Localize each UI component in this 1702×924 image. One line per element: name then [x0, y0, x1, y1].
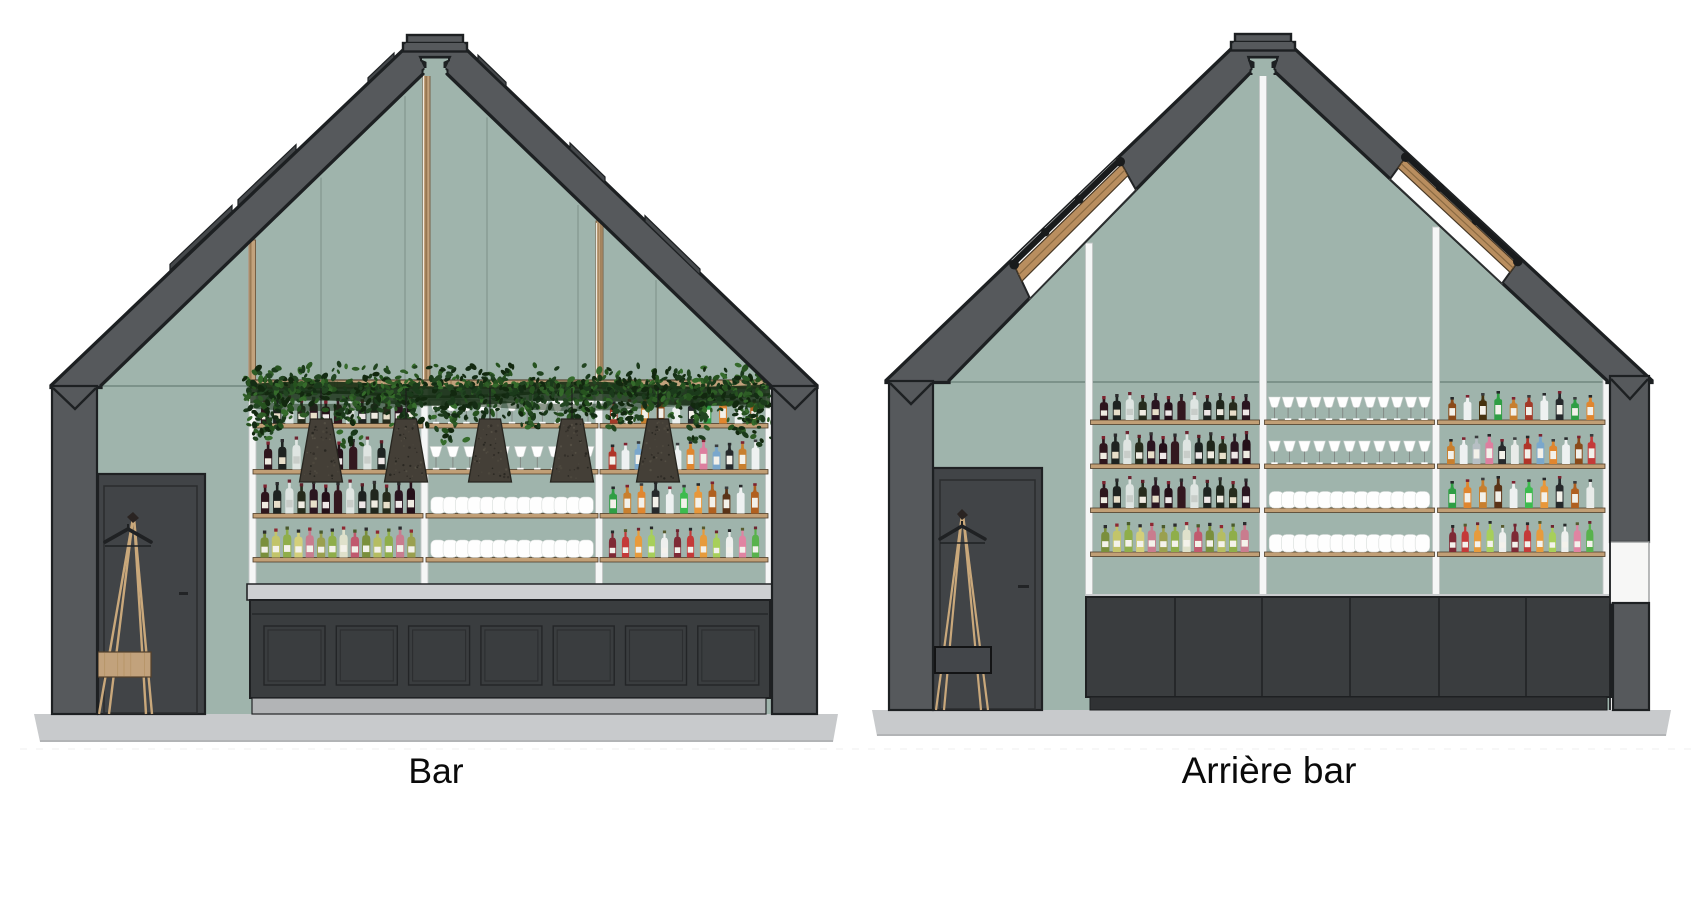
svg-text:Bar: Bar: [408, 751, 463, 791]
svg-text:Arrière bar: Arrière bar: [1182, 750, 1357, 791]
